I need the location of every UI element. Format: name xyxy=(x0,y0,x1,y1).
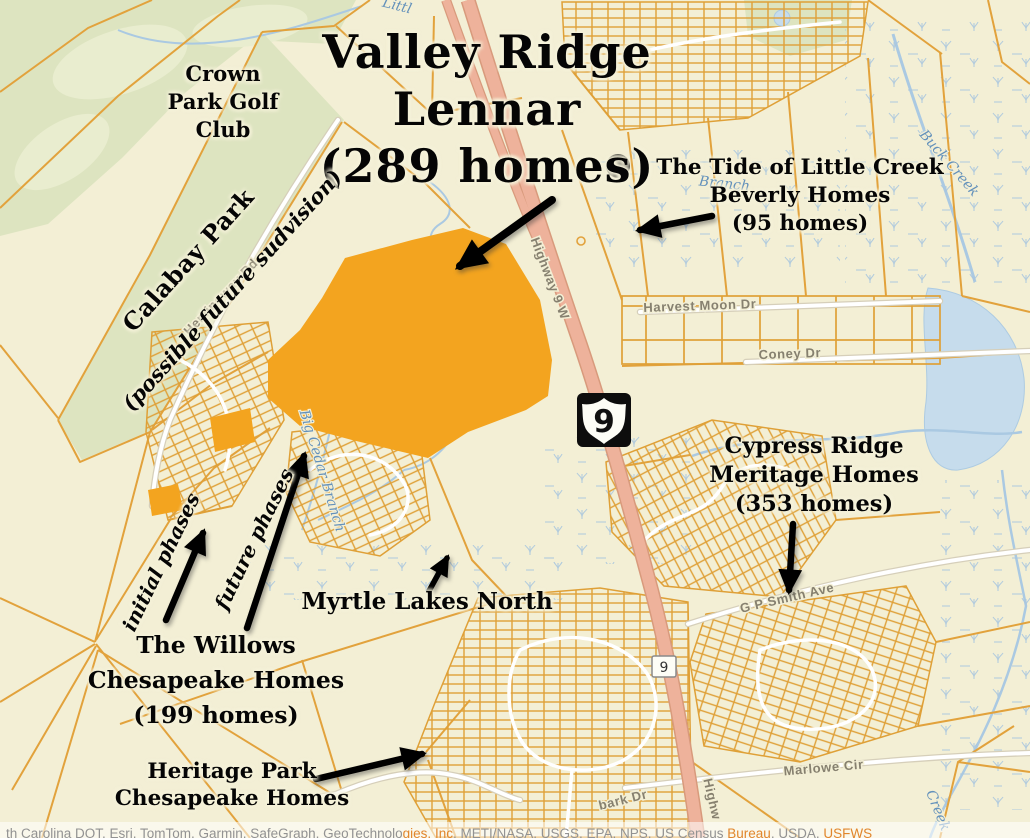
label-crown-park-golf-club: Crown Park Golf Club xyxy=(168,60,279,144)
route-9-small-shield: 9 xyxy=(652,656,676,677)
coney-dr-label: Coney Dr xyxy=(758,345,821,362)
title-line-1: Valley Ridge xyxy=(320,24,655,81)
label-tide-of-little-creek: The Tide of Little Creek Beverly Homes (… xyxy=(656,154,943,238)
title-line-3: (289 homes) xyxy=(320,138,655,195)
label-cypress-ridge: Cypress Ridge Meritage Homes (353 homes) xyxy=(709,432,919,519)
us-9-shield: 9 xyxy=(577,393,631,447)
attribution: th Carolina DOT, Esri, TomTom, Garmin, S… xyxy=(6,826,872,838)
title-valley-ridge: Valley Ridge Lennar (289 homes) xyxy=(320,24,655,195)
title-line-2: Lennar xyxy=(320,81,655,138)
route-9-small-number: 9 xyxy=(660,660,669,676)
label-the-willows: The Willows Chesapeake Homes (199 homes) xyxy=(88,628,344,733)
label-myrtle-lakes-north: Myrtle Lakes North xyxy=(301,588,552,615)
map-container: Harvest Moon Dr Coney Dr G P Smith Ave M… xyxy=(0,0,1030,838)
us-9-shield-number: 9 xyxy=(593,404,615,440)
label-heritage-park: Heritage Park Chesapeake Homes xyxy=(115,758,349,812)
